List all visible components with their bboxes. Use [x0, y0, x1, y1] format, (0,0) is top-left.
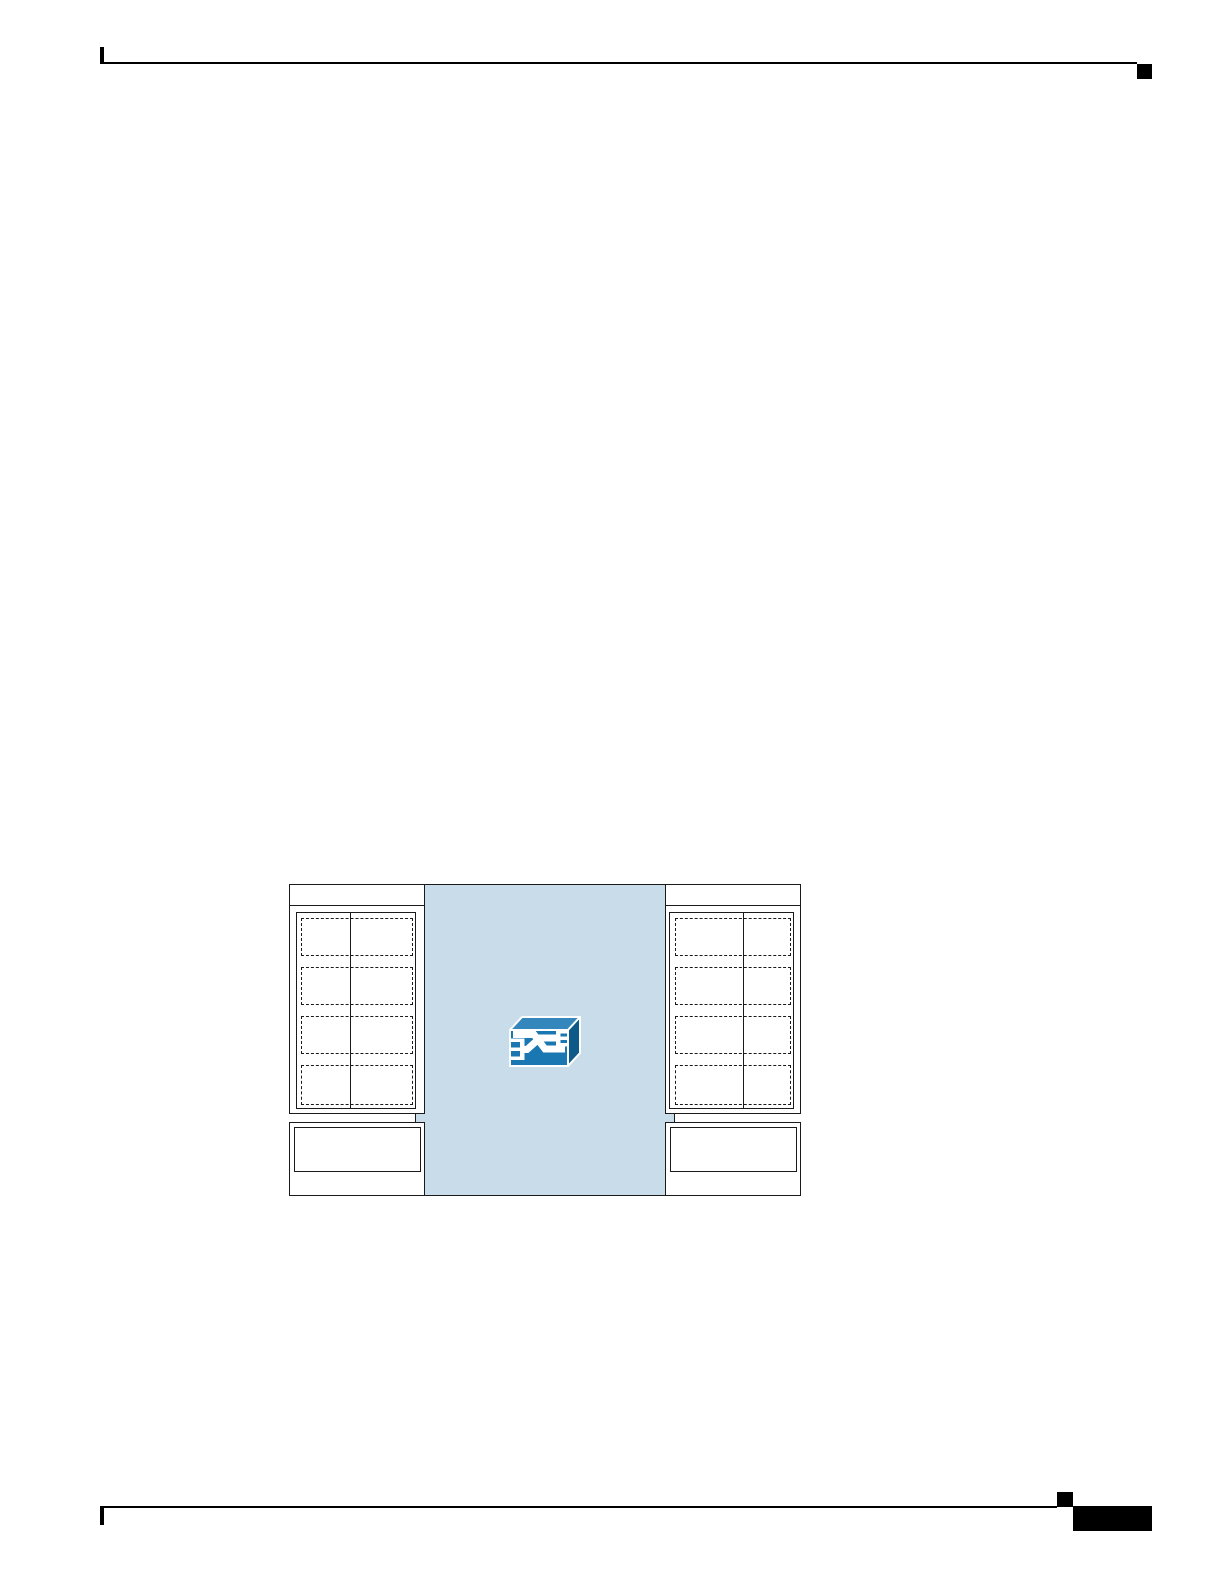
shelf-module-box: [294, 1127, 421, 1172]
header-corner-block: [1137, 64, 1152, 79]
page-number-block: [1073, 1506, 1152, 1531]
slot-row: [301, 967, 413, 1005]
shelf-panel-left: [289, 1122, 425, 1196]
slot-row: [675, 918, 791, 956]
rack-panel-left: [289, 884, 425, 1114]
switch-icon: [507, 1012, 583, 1068]
footer-corner-square: [1057, 1492, 1073, 1507]
header-rule: [101, 62, 1137, 64]
slot-row: [675, 967, 791, 1005]
slot-row: [301, 1065, 413, 1105]
rack-top-cap: [290, 885, 424, 906]
topology-figure: [289, 884, 801, 1196]
slot-row: [675, 1065, 791, 1105]
footer-rule: [101, 1506, 1057, 1508]
slot-row: [301, 918, 413, 956]
rack-top-cap: [666, 885, 800, 906]
shelf-panel-right: [665, 1122, 801, 1196]
shelf-module-box: [670, 1127, 797, 1172]
slot-row: [301, 1016, 413, 1054]
rack-card-frame: [669, 912, 794, 1109]
document-page: [0, 0, 1224, 1584]
footer-rule-tick: [100, 1506, 104, 1525]
slot-row: [675, 1016, 791, 1054]
rack-card-frame: [296, 912, 416, 1109]
rack-panel-right: [665, 884, 801, 1114]
